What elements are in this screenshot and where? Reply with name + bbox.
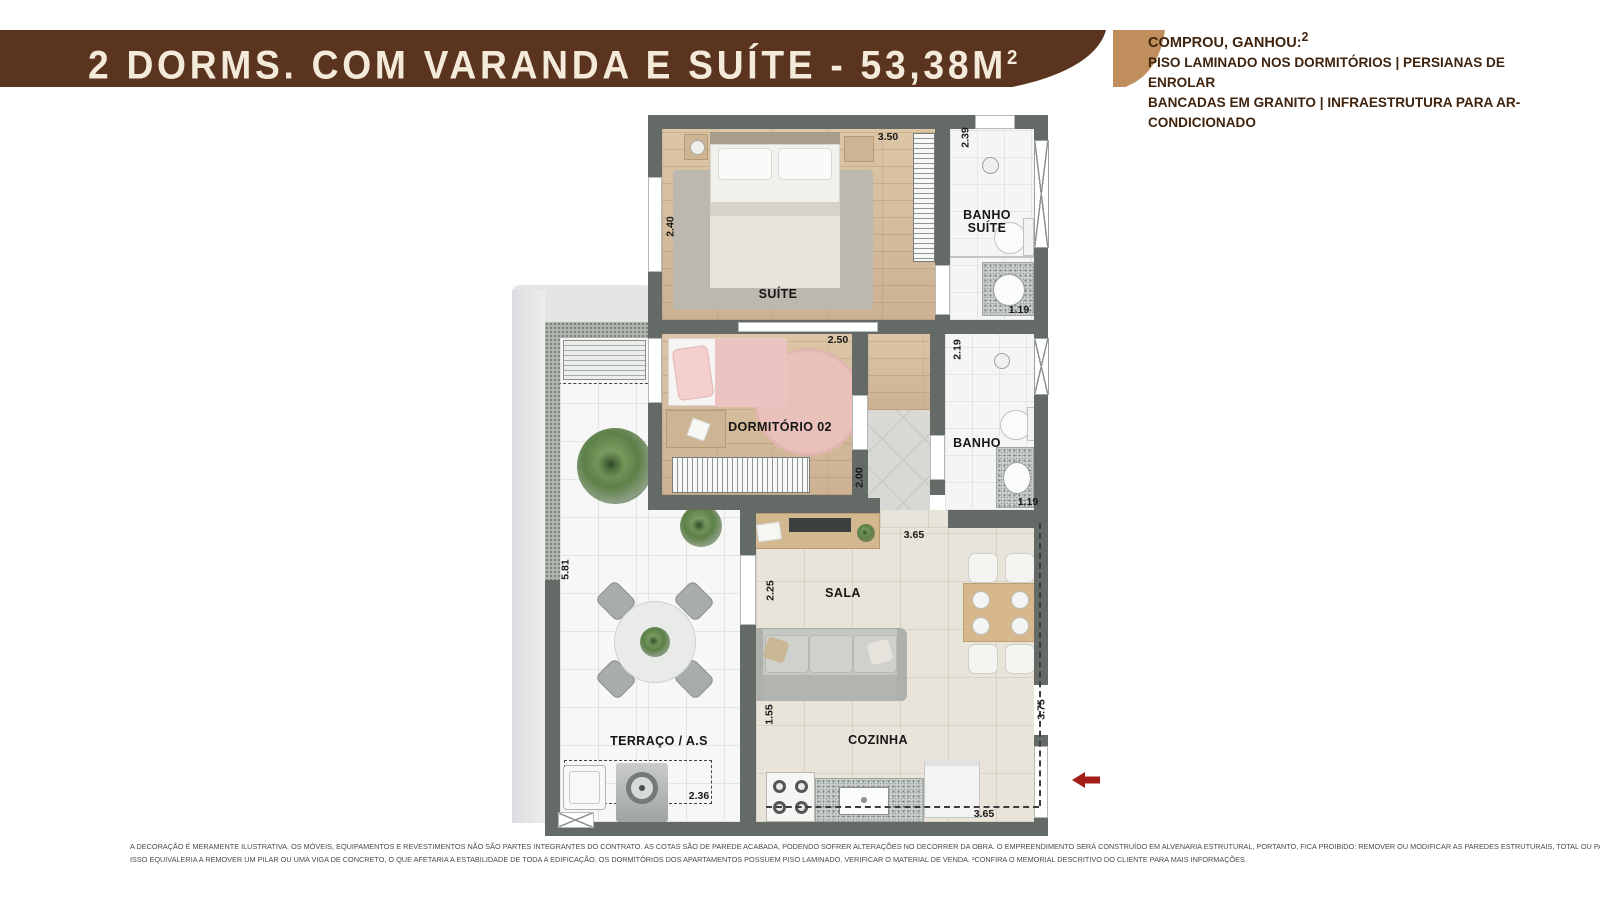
dorm2-bed-blanket <box>715 339 787 407</box>
dining-chair-3 <box>968 644 998 674</box>
promo-line-1: PISO LAMINADO NOS DORMITÓRIOS | PERSIANA… <box>1148 52 1555 92</box>
room-label-banho: BANHO <box>935 437 1019 450</box>
banho-sink <box>1003 462 1031 494</box>
plate-3 <box>972 617 990 635</box>
terraco-floor <box>560 338 648 822</box>
dim-terraco-depth: 5.81 <box>560 555 573 585</box>
washing-machine <box>616 763 668 822</box>
page-title-text: 2 DORMS. COM VARANDA E SUÍTE - 53,38M <box>88 43 1007 87</box>
dorm2-window <box>648 338 662 403</box>
dining-chair-4 <box>1005 644 1035 674</box>
kitchen-counter <box>815 778 924 822</box>
plate-1 <box>972 591 990 609</box>
dorm2-bed-pillow <box>672 345 715 402</box>
washing-machine-knob <box>639 785 645 791</box>
sala-plant-icon <box>857 524 875 542</box>
burner-2 <box>795 780 808 793</box>
passage-floor <box>880 510 948 528</box>
dining-chair-2 <box>1005 553 1035 583</box>
stove <box>766 772 815 822</box>
dining-chair-1 <box>968 553 998 583</box>
room-label-terraco: TERRAÇO / A.S <box>584 735 734 748</box>
room-label-dormitorio02: DORMITÓRIO 02 <box>700 421 860 434</box>
sala-sofa <box>752 628 906 700</box>
room-label-sala: SALA <box>793 587 893 600</box>
suite-bed <box>710 132 840 288</box>
terraco-plant-small <box>680 505 722 547</box>
sala-papers <box>756 521 782 542</box>
legal-disclaimer-line1: A DECORAÇÃO É MERAMENTE ILUSTRATIVA. OS … <box>130 840 1465 853</box>
dim-banho-depth: 2.19 <box>952 335 965 365</box>
hall-floor <box>868 410 930 510</box>
laundry-tank <box>563 765 606 810</box>
corridor-floor <box>868 334 930 410</box>
promo-heading-superscript: 2 <box>1302 30 1309 44</box>
suite-lamp <box>690 140 705 155</box>
dim-dorm2-width: 2.50 <box>821 334 855 347</box>
legal-disclaimer: A DECORAÇÃO É MERAMENTE ILUSTRATIVA. OS … <box>130 840 1465 866</box>
dim-sala-width: 3.65 <box>897 529 931 542</box>
laundry-tank-basin <box>569 771 600 804</box>
promo-heading-text: COMPROU, GANHOU: <box>1148 34 1302 51</box>
plate-4 <box>1011 617 1029 635</box>
room-label-cozinha: COZINHA <box>828 734 928 747</box>
wall-west-suite <box>648 115 662 510</box>
promo-line-2: BANCADAS EM GRANITO | INFRAESTRUTURA PAR… <box>1148 92 1555 132</box>
wall-banhos-divider <box>930 320 1048 334</box>
dorm2-bed <box>668 338 786 406</box>
promo-block: COMPROU, GANHOU:2 PISO LAMINADO NOS DORM… <box>1148 28 1555 132</box>
dim-cozinha-depth: 1.55 <box>764 700 777 730</box>
suite-bed-blanket <box>710 202 840 288</box>
dim-dorm2-depth: 2.00 <box>854 463 867 493</box>
dim-suite-depth: 2.40 <box>665 212 678 242</box>
sala-sideboard <box>746 513 880 549</box>
suite-closet-doors <box>738 322 878 332</box>
suite-wardrobe <box>913 133 935 262</box>
banho-suite-shower-line <box>950 256 1034 258</box>
suite-bed-headboard <box>710 132 840 144</box>
dorm2-wardrobe <box>672 457 810 493</box>
sofa-back <box>753 675 907 701</box>
sala-terraco-door <box>740 555 756 625</box>
wall-terraco-top <box>545 322 648 338</box>
exterior-band-left <box>512 290 545 823</box>
suite-bed-pillow-left <box>718 148 772 180</box>
promo-heading: COMPROU, GANHOU:2 <box>1148 28 1555 52</box>
banho-suite-shower-screen <box>1034 140 1049 248</box>
suite-side-table <box>844 136 874 162</box>
suite-nightstand <box>684 134 708 160</box>
sofa-arm-right <box>897 629 907 701</box>
dim-service-width: 2.36 <box>682 790 716 803</box>
room-label-suite: SUÍTE <box>728 288 828 301</box>
dining-table <box>963 583 1037 642</box>
room-label-banho-suite-line2: SUÍTE <box>945 222 1029 235</box>
dim-banho-suite-depth: 2.39 <box>960 123 973 153</box>
wall-sala-west <box>740 498 756 822</box>
terraco-table-plant <box>640 627 670 657</box>
entry-dashed-line-vertical <box>1039 523 1041 806</box>
wall-banho-bottom <box>948 510 1048 528</box>
ac-louver-unit <box>563 340 646 380</box>
banho-drain <box>994 353 1010 369</box>
entry-arrow-icon <box>1072 771 1100 789</box>
banho-suite-top-window <box>975 115 1015 129</box>
dim-banho-width: 1.19 <box>1011 496 1045 509</box>
dim-suite-width: 3.50 <box>871 131 905 144</box>
suite-window <box>648 177 662 272</box>
plate-2 <box>1011 591 1029 609</box>
legal-disclaimer-line2: ISSO EQUIVALERIA A REMOVER UM PILAR OU U… <box>130 853 1465 866</box>
terraco-plant-large <box>577 428 653 504</box>
kitchen-faucet <box>861 797 867 803</box>
wall-bottom <box>545 822 1048 836</box>
wall-sala-top <box>740 498 880 513</box>
banho-suite-door <box>935 265 950 315</box>
dim-cozinha-width: 3.65 <box>967 808 1001 821</box>
burner-1 <box>773 780 786 793</box>
banho-shower-screen <box>1034 338 1049 395</box>
wall-terraco-left-upper <box>545 322 560 580</box>
suite-bed-pillow-right <box>778 148 832 180</box>
floor-plan: 3.50 2.40 2.39 1.19 2.50 2.00 2.19 1.19 … <box>488 110 1103 845</box>
dim-sala-depth: 2.25 <box>765 576 778 606</box>
room-label-banho-suite: BANHO SUÍTE <box>945 209 1029 235</box>
dim-banho-suite-width: 1.19 <box>1002 304 1036 317</box>
sofa-cushion-2 <box>809 635 853 673</box>
banho-suite-sink <box>993 274 1025 306</box>
sala-tv <box>789 518 851 532</box>
page-title: 2 DORMS. COM VARANDA E SUÍTE - 53,38M2 <box>88 30 1017 87</box>
hatch-box <box>558 812 594 828</box>
banho-suite-drain <box>982 157 999 174</box>
page-title-superscript: 2 <box>1007 47 1017 69</box>
wall-terraco-left-lower <box>545 580 560 822</box>
dim-entry-wall-depth: 3.75 <box>1036 695 1049 725</box>
